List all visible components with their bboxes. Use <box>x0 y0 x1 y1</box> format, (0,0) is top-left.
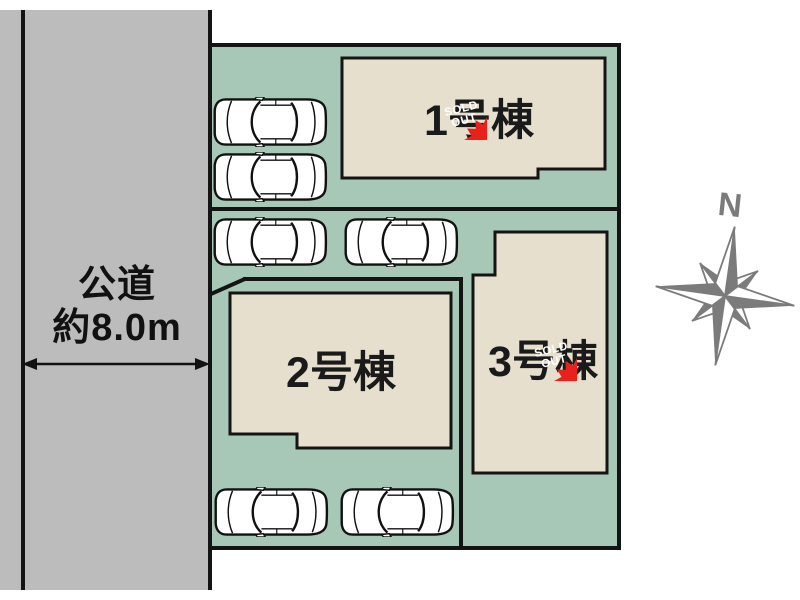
site-plan: 公道 約8.0m 1号棟 2号棟 3号棟 SOLD OUT SOLD OUT <box>0 0 800 600</box>
compass-rose-icon <box>650 221 800 371</box>
parcel-boundary-vertical-line <box>459 277 463 548</box>
car-top-icon <box>213 487 329 537</box>
sold-out-badge-building-3: SOLD OUT <box>529 333 577 381</box>
car-top-icon <box>339 487 455 537</box>
car-top-icon <box>343 217 459 267</box>
road-name: 公道 <box>24 264 210 307</box>
sold-out-badge-building-1: SOLD OUT <box>439 92 487 140</box>
road-width-arrow-icon <box>21 357 211 371</box>
car-top-icon <box>212 97 328 147</box>
road-width: 約8.0m <box>24 307 210 350</box>
building-2-label: 2号棟 <box>286 338 396 400</box>
car-top-icon <box>212 152 328 202</box>
car-top-icon <box>212 217 328 267</box>
compass-north-label: N <box>716 185 744 225</box>
road-label: 公道 約8.0m <box>24 264 210 349</box>
parcel-boundary-horizontal-line <box>243 277 462 281</box>
section-divider-line <box>212 207 621 211</box>
